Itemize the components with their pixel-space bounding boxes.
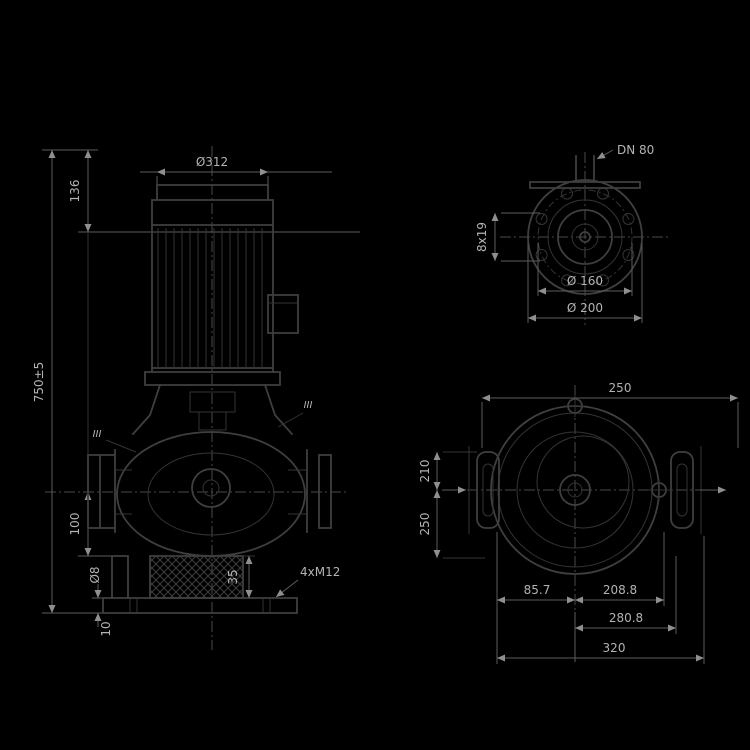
dim-plan-250-top: 250 — [609, 381, 632, 395]
section-leader-right — [278, 413, 303, 427]
dim-plan-250-left-group: 250 — [418, 490, 485, 558]
dim-plan-320: 320 — [603, 641, 626, 655]
pump-casing — [88, 432, 331, 556]
pump-dimension-drawing: Ø312 750±5 136 100 — [0, 0, 750, 750]
dim-port-height: 100 — [68, 513, 82, 536]
drawing-canvas: Ø312 750±5 136 100 — [0, 0, 750, 750]
dim-foot-height: 35 — [226, 569, 240, 584]
anchor-bolt-callout: 4xM12 — [276, 565, 340, 597]
dim-plan-280-8-group: 280.8 — [575, 611, 676, 628]
dim-baseplate-group: 10 — [98, 584, 113, 637]
dim-motor-diameter-group: Ø312 — [140, 155, 332, 186]
dim-plan-85-7: 85.7 — [524, 583, 551, 597]
dim-plan-280-8: 280.8 — [609, 611, 643, 625]
drain-boss — [112, 556, 128, 598]
dim-flange-od: Ø 200 — [567, 301, 603, 315]
dim-plan-208-8-group: 208.8 — [575, 583, 664, 600]
dim-motor-diameter: Ø312 — [196, 155, 228, 169]
pump-base — [103, 556, 297, 613]
plan-bottom-view: 250 210 250 85.7 208.8 280.8 — [418, 381, 738, 664]
dim-plan-250-left: 250 — [418, 513, 432, 536]
anchor-slots — [130, 598, 270, 613]
motor-body — [145, 185, 298, 385]
dim-port-height-group: 100 — [68, 492, 88, 556]
reference-lines — [42, 150, 360, 613]
front-view: Ø312 750±5 136 100 — [32, 146, 360, 650]
bottom-extension-lines — [497, 532, 704, 664]
dim-plan-208-8: 208.8 — [603, 583, 637, 597]
section-mark-right: III — [304, 400, 313, 411]
dim-bolt-circle: Ø 160 — [567, 274, 603, 288]
suction-flange — [88, 450, 115, 532]
flange-top-view: DN 80 8x19 Ø 160 Ø 200 — [475, 143, 670, 325]
dn-callout: DN 80 — [597, 143, 654, 159]
section-mark-left: III — [93, 429, 102, 440]
label-anchor-bolts: 4xM12 — [300, 565, 340, 579]
dim-plan-210-group: 210 — [418, 452, 477, 490]
dim-height-136: 136 — [68, 180, 82, 203]
base-plate — [103, 598, 297, 613]
motor-fins — [158, 228, 262, 368]
section-leader-left — [106, 440, 136, 452]
label-drain-diameter: Ø8 — [88, 566, 102, 583]
label-dn: DN 80 — [617, 143, 654, 157]
discharge-flange — [307, 450, 331, 532]
dim-bolt-holes: 8x19 — [475, 222, 489, 252]
dim-plan-210: 210 — [418, 460, 432, 483]
dim-total-height: 750±5 — [32, 362, 46, 403]
dim-plan-320-group: 320 — [497, 641, 704, 658]
dim-total-height-group: 750±5 — [32, 150, 52, 613]
dim-plan-85-7-group: 85.7 — [497, 583, 575, 600]
dim-baseplate-thickness: 10 — [99, 621, 113, 636]
dim-height-136-group: 136 — [68, 150, 88, 232]
